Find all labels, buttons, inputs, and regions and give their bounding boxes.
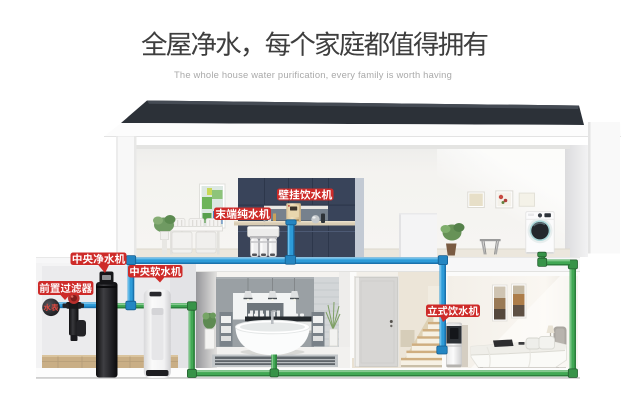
svg-text:The whole house water purifica: The whole house water purification, ever… <box>174 69 452 80</box>
